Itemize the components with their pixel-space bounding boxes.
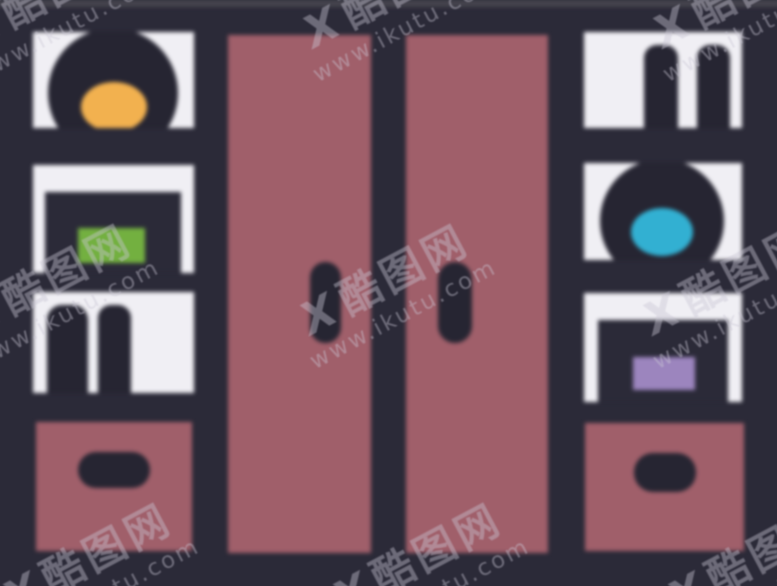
right-shelf-middle	[584, 163, 742, 260]
right-drawer-handle	[634, 453, 696, 492]
book-vertical-icon	[98, 305, 131, 393]
right-drawer	[585, 423, 744, 551]
left-drawer-handle	[78, 452, 150, 488]
teal-ball-icon	[631, 208, 693, 256]
wardrobe-illustration: X酷图网 www.ikutu.com X酷图网 www.ikutu.com X酷…	[0, 0, 777, 586]
orange-ball-icon	[81, 82, 147, 128]
